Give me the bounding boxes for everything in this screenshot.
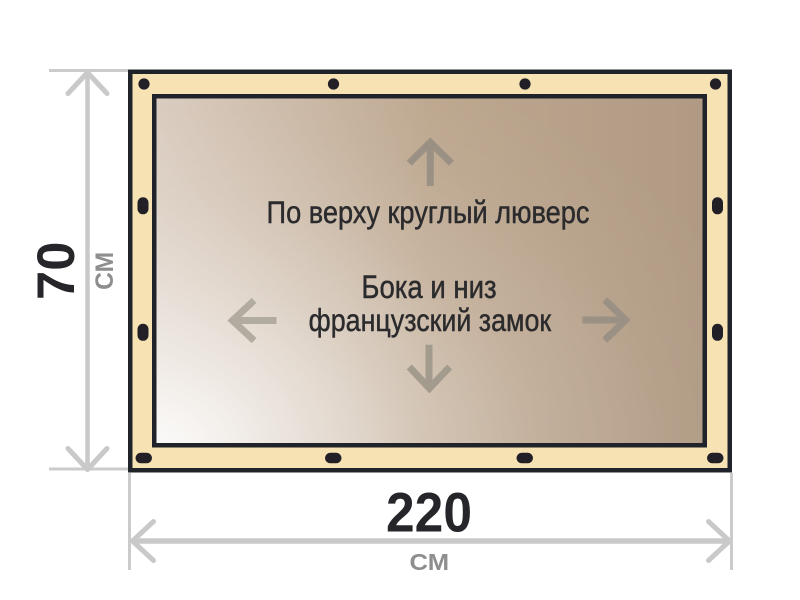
svg-text:СМ: СМ xyxy=(92,252,119,290)
svg-text:220: 220 xyxy=(386,482,472,544)
svg-text:французский замок: французский замок xyxy=(309,303,552,339)
svg-text:Бока и низ: Бока и низ xyxy=(361,270,496,305)
svg-text:70: 70 xyxy=(27,242,86,300)
svg-text:По верху круглый люверс: По верху круглый люверс xyxy=(267,195,590,230)
svg-text:СМ: СМ xyxy=(410,550,450,576)
